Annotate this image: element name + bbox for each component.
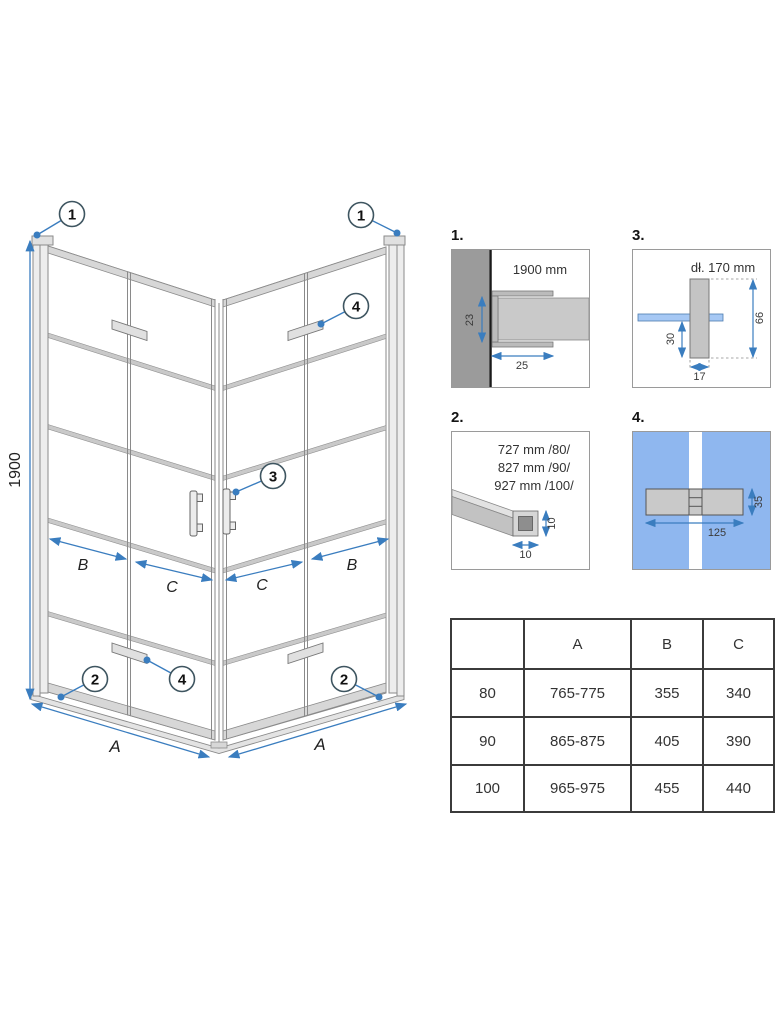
callout-2-right: 2 [340,672,348,689]
detail-3-dim-width: 17 [693,371,705,383]
size-cell: 100 [451,765,524,812]
detail-3-drawing: dł. 170 mm 66 30 17 [632,249,771,388]
detail-1-dim-depth: 23 [464,314,476,326]
handle-bar [690,279,709,358]
table-row: 80 765-775 355 340 [451,669,774,717]
glass-wall-right [223,247,386,740]
hinge-center [689,489,702,515]
detail-1-dim-width: 25 [516,360,528,372]
glass-panel [498,298,589,340]
detail-4-drawing: 125 35 [632,431,771,570]
square-tube [452,490,538,537]
detail-2-drawing: 727 mm /80/ 827 mm /90/ 927 mm /100/ 10 … [451,431,590,570]
detail-4-dim-length: 125 [708,527,726,539]
callout-2-left: 2 [91,672,99,689]
detail-1-drawing: 1900 mm 23 25 [451,249,590,388]
detail-3-dim-lower: 30 [665,333,677,345]
detail-3-caption: dł. 170 mm [691,260,755,275]
detail-panel-2: 2. 727 mm /80/ 827 mm /90/ 927 mm /100/ … [451,409,590,570]
table-header-row: A B C [451,619,774,669]
detail-panel-1: 1. 1900 mm 23 25 [451,227,590,388]
size-table: A B C 80 765-775 355 340 90 865-875 405 … [450,618,775,813]
a-cell: 865-875 [524,717,631,765]
header-cell-a: A [524,619,631,669]
a-cell: 965-975 [524,765,631,812]
detail-3-dim-total: 66 [754,312,766,324]
callout-4-top: 4 [352,299,361,316]
dim-a-left-label: A [108,737,120,756]
detail-1-caption: 1900 mm [513,262,567,277]
header-cell-c: C [703,619,774,669]
detail-2-dim-w: 10 [519,549,531,561]
detail-1-label: 1. [451,227,590,242]
b-cell: 455 [631,765,703,812]
dim-b-left-label: B [78,557,89,574]
detail-2-label: 2. [451,409,590,424]
a-cell: 765-775 [524,669,631,717]
dim-b-right-label: B [347,557,358,574]
height-dimension: 1900 [7,241,30,699]
table-row: 100 965-975 455 440 [451,765,774,812]
size-cell: 80 [451,669,524,717]
b-cell: 405 [631,717,703,765]
c-cell: 440 [703,765,774,812]
detail-2-length-90: 827 mm /90/ [498,460,571,475]
table-row: 90 865-875 405 390 [451,717,774,765]
shower-enclosure-drawing: 1900 B C C B A A [0,0,445,790]
dim-c-right-label: C [256,577,268,594]
size-cell: 90 [451,717,524,765]
dim-a-right-label: A [313,735,325,754]
detail-4-label: 4. [632,409,771,424]
header-cell-b: B [631,619,703,669]
detail-panel-3: 3. dł. 170 mm 66 30 17 [632,227,771,388]
header-cell-blank [451,619,524,669]
detail-3-label: 3. [632,227,771,242]
b-cell: 355 [631,669,703,717]
page: 1900 B C C B A A [0,0,776,1016]
callout-1-left: 1 [68,207,76,224]
c-cell: 340 [703,669,774,717]
height-dim-label: 1900 [7,452,24,488]
dim-c-left-label: C [166,579,178,596]
detail-2-length-80: 727 mm /80/ [498,442,571,457]
wall-profile-right [384,236,405,696]
detail-4-dim-height: 35 [753,496,765,508]
detail-2-length-100: 927 mm /100/ [494,478,574,493]
callout-3: 3 [269,469,277,486]
detail-2-dim-h: 10 [546,517,558,529]
callout-1-right: 1 [357,208,365,225]
c-cell: 390 [703,717,774,765]
callout-4-bottom: 4 [178,672,187,689]
glass-strip [638,314,723,321]
detail-panel-4: 4. 125 35 [632,409,771,570]
